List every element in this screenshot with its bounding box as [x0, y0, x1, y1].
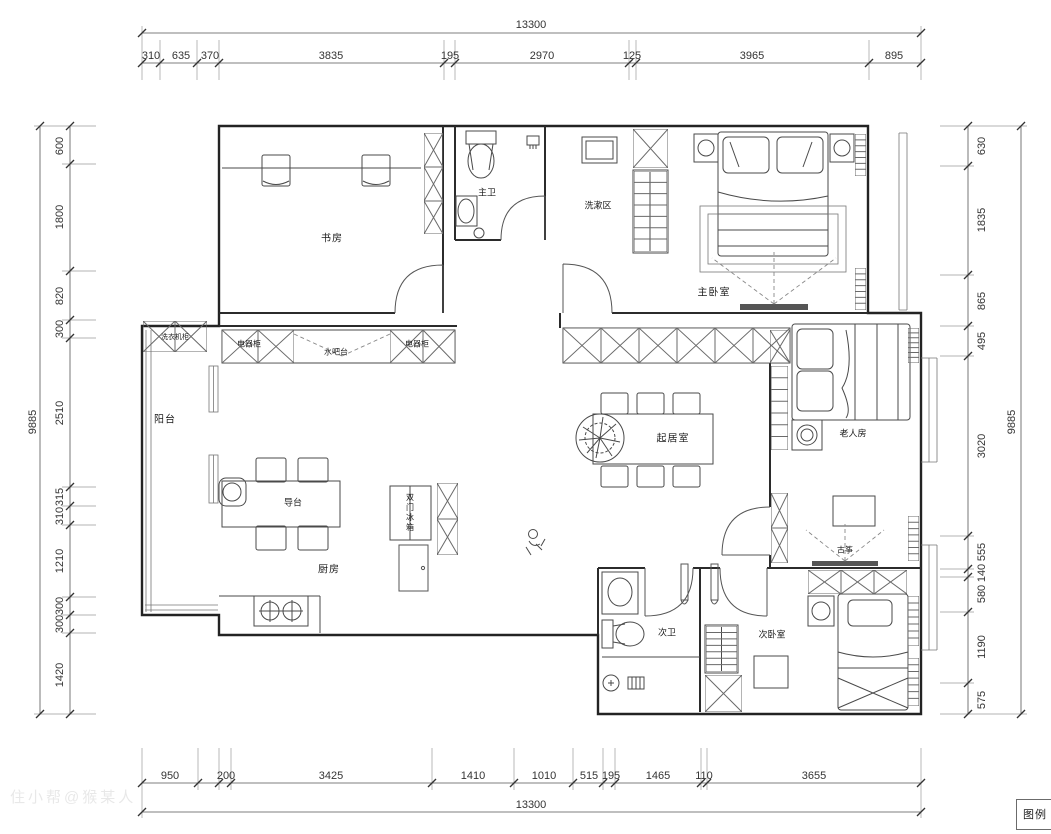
doors [395, 196, 770, 616]
room-label-balcony: 阳台 [154, 411, 176, 426]
room-label-second-bath: 次卫 [658, 626, 676, 639]
label-appliance-cabinet-right: 电器柜 [405, 339, 429, 350]
dim-left-0: 600 [54, 137, 66, 155]
dim-bottom-7: 1465 [646, 770, 670, 782]
room-label-living: 起居室 [657, 430, 690, 445]
dim-right-total: 9885 [1006, 410, 1018, 434]
dim-top-total: 13300 [516, 19, 547, 31]
legend-label: 图例 [1023, 806, 1047, 822]
room-label-elder: 老人房 [839, 427, 866, 440]
dim-right-9: 575 [976, 691, 988, 709]
dim-bottom-4: 1010 [532, 770, 556, 782]
dim-top-4: 195 [441, 50, 459, 62]
dim-top-3: 3835 [319, 50, 343, 62]
label-guzheng: 古筝 [837, 545, 853, 556]
dim-left-7: 1210 [54, 549, 66, 573]
dim-left-8: 300 [54, 597, 66, 615]
dim-right-1: 1835 [976, 208, 988, 232]
dim-left-total: 9885 [27, 410, 39, 434]
dim-left-10: 1420 [54, 663, 66, 687]
dim-left-2: 820 [54, 287, 66, 305]
dim-left-9: 300 [54, 615, 66, 633]
dim-left-3: 300 [54, 320, 66, 338]
label-fridge: 双门冰箱 [405, 493, 416, 533]
dim-right-2: 865 [976, 292, 988, 310]
dim-left-5: 315 [54, 488, 66, 506]
floorplan-canvas: 13300 310 635 370 3835 195 2970 125 3965… [0, 0, 1051, 834]
dim-right-4: 3020 [976, 434, 988, 458]
dim-left-4: 2510 [54, 401, 66, 425]
room-label-master-bath: 主卫 [478, 186, 496, 199]
room-label-study: 书房 [321, 230, 343, 245]
dim-bottom-3: 1410 [461, 770, 485, 782]
study-furniture [222, 155, 421, 186]
dim-bottom-9: 3655 [802, 770, 826, 782]
wash-area-fixtures [582, 137, 668, 253]
label-water-bar: 水吧台 [324, 347, 348, 358]
dim-top-8: 895 [885, 50, 903, 62]
master-bath-fixtures [456, 131, 539, 238]
dim-top-2: 370 [201, 50, 219, 62]
dim-top-0: 310 [142, 50, 160, 62]
watermark: 住小帮@猴某人 [10, 786, 136, 807]
dim-right-0: 630 [976, 137, 988, 155]
dim-bottom-6: 195 [602, 770, 620, 782]
balcony-glazing [145, 330, 218, 612]
legend-box: 图例 [1016, 799, 1051, 830]
room-label-master-bedroom: 主卧室 [698, 284, 731, 299]
room-label-kitchen: 厨房 [318, 561, 340, 576]
dim-right-8: 1190 [976, 635, 988, 659]
room-label-second-bedroom: 次卧室 [758, 628, 785, 641]
dim-top-5: 2970 [530, 50, 554, 62]
dim-right-3: 495 [976, 332, 988, 350]
dim-top-6: 125 [623, 50, 641, 62]
dim-bottom-1: 200 [217, 770, 235, 782]
dim-bottom-8: 110 [695, 770, 713, 782]
dim-right-7: 580 [976, 585, 988, 603]
dim-right-6: 140 [976, 564, 988, 582]
label-appliance-cabinet-left: 电器柜 [237, 339, 261, 350]
dim-left-1: 1800 [54, 205, 66, 229]
dim-bottom-5: 515 [580, 770, 598, 782]
dim-bottom-2: 3425 [319, 770, 343, 782]
dim-top-1: 635 [172, 50, 190, 62]
dim-top-7: 3965 [740, 50, 764, 62]
second-bedroom-furniture [754, 594, 908, 710]
elder-room-furniture [792, 324, 910, 566]
dim-bottom-total: 13300 [516, 799, 547, 811]
room-label-wash-area: 洗漱区 [584, 199, 611, 212]
dim-right-5: 555 [976, 543, 988, 561]
dim-bottom-0: 950 [161, 770, 179, 782]
label-island: 导台 [284, 496, 302, 509]
label-laundry-cabinet: 洗衣机柜 [161, 332, 189, 342]
dim-left-6: 310 [54, 507, 66, 525]
